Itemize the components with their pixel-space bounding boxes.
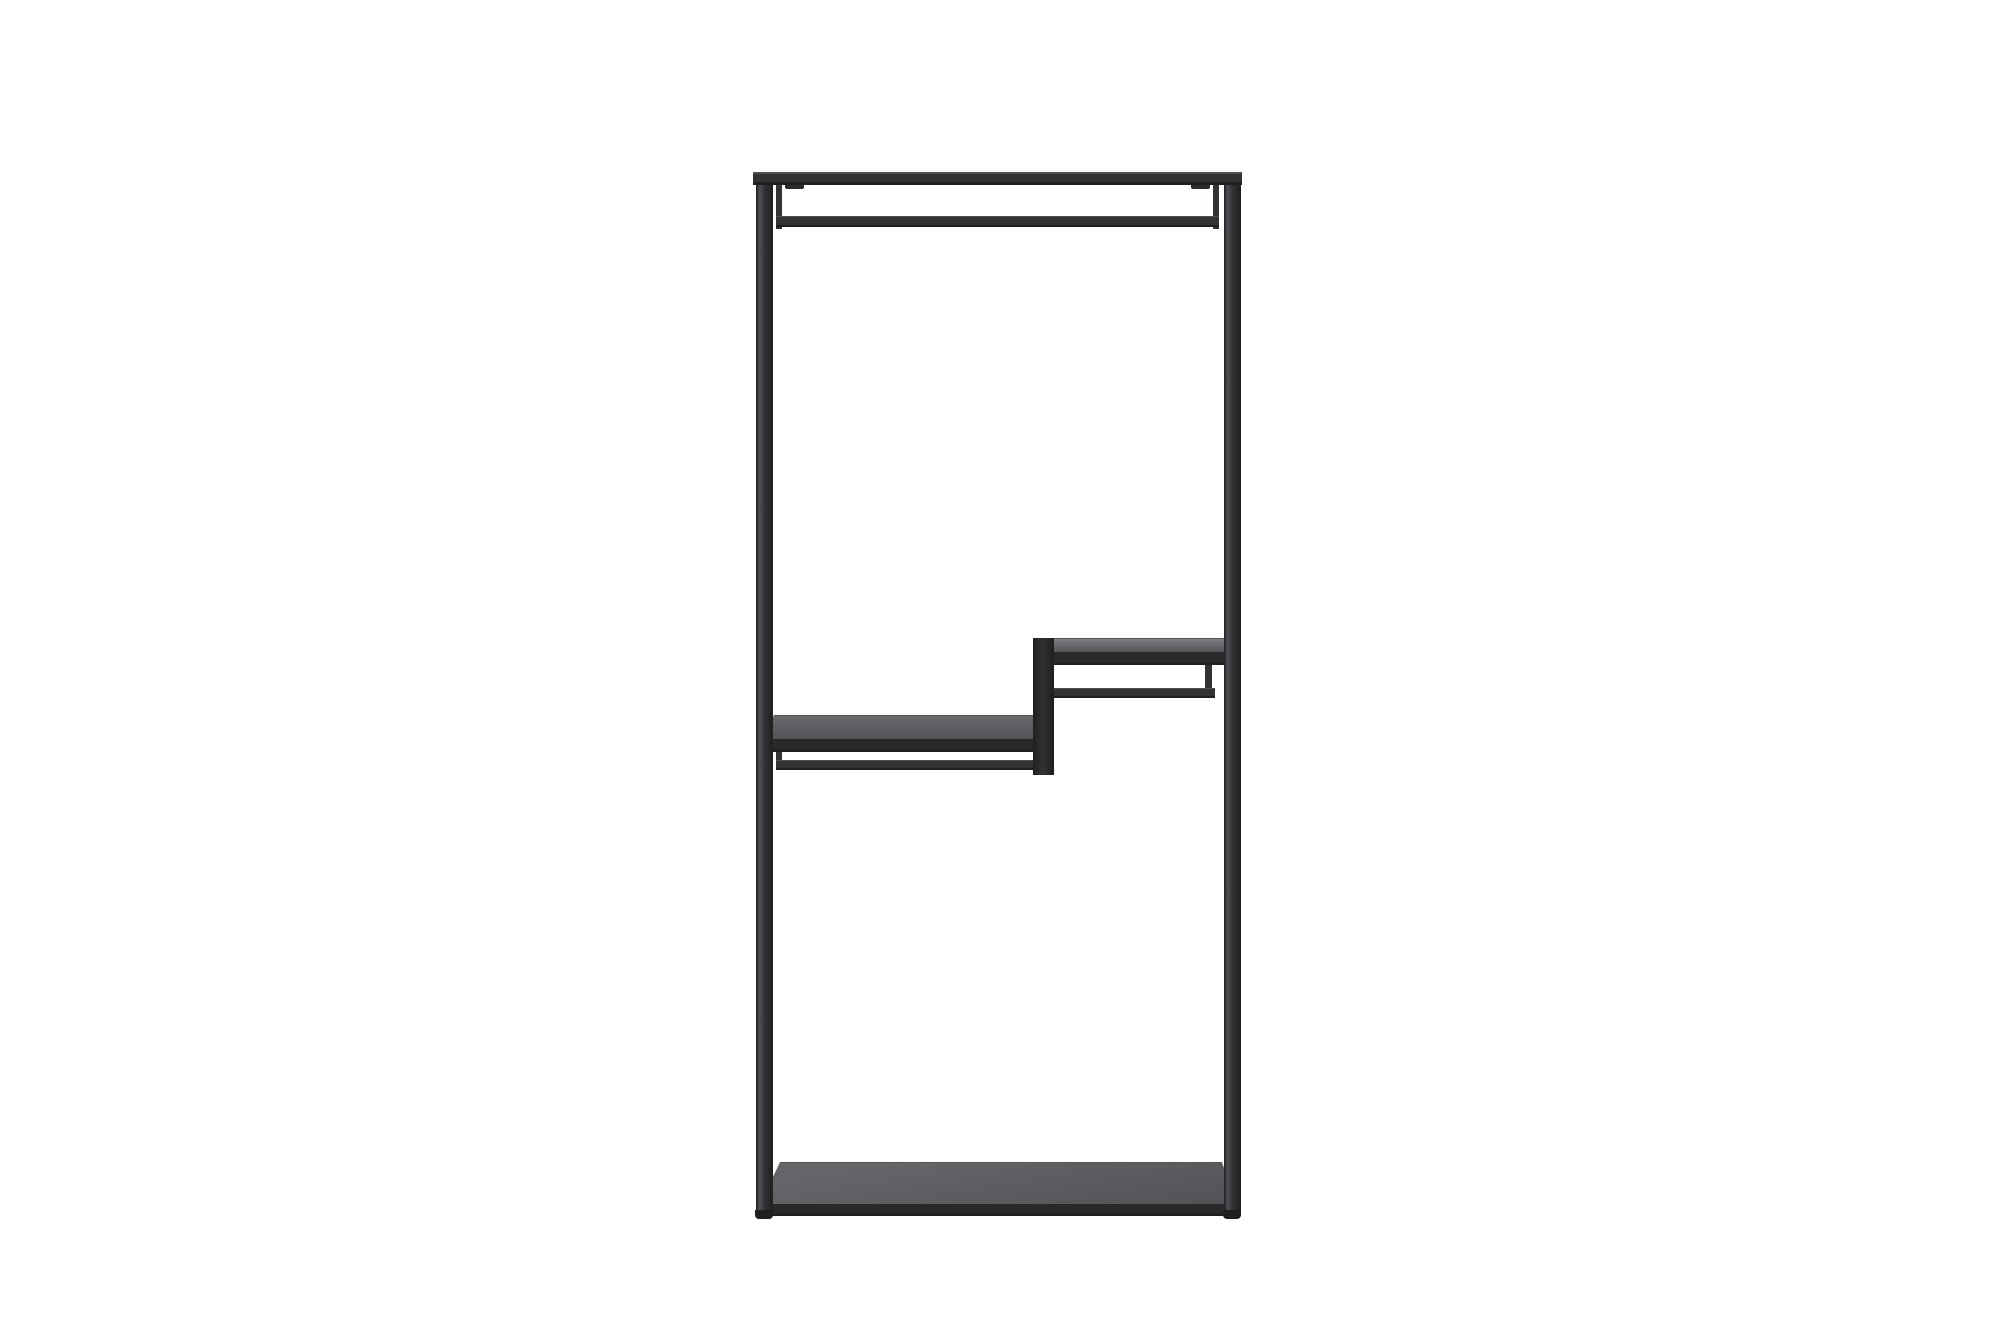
lower-shelf-rail: [776, 760, 1033, 770]
top-bar: [753, 172, 1242, 185]
base-shelf-surface: [760, 1162, 1238, 1204]
product-photo: [0, 0, 2000, 1334]
upper-shelf-rail: [1054, 688, 1215, 698]
lower-shelf-rail-stub: [776, 751, 782, 760]
step-panel: [1033, 638, 1054, 775]
foot-right: [1223, 1210, 1241, 1219]
upper-shelf-rail-stub: [1205, 665, 1212, 688]
base-shelf-front-edge: [757, 1204, 1238, 1216]
hanging-rail: [776, 216, 1219, 227]
lower-shelf-surface: [762, 715, 1033, 739]
foot-left: [755, 1210, 773, 1219]
right-post: [1224, 172, 1241, 1216]
clothes-rack: [753, 172, 1242, 1218]
upper-shelf-surface: [1040, 638, 1239, 652]
lower-shelf-front-edge: [758, 739, 1033, 752]
left-post: [756, 172, 773, 1216]
upper-shelf-front-edge: [1033, 652, 1239, 665]
